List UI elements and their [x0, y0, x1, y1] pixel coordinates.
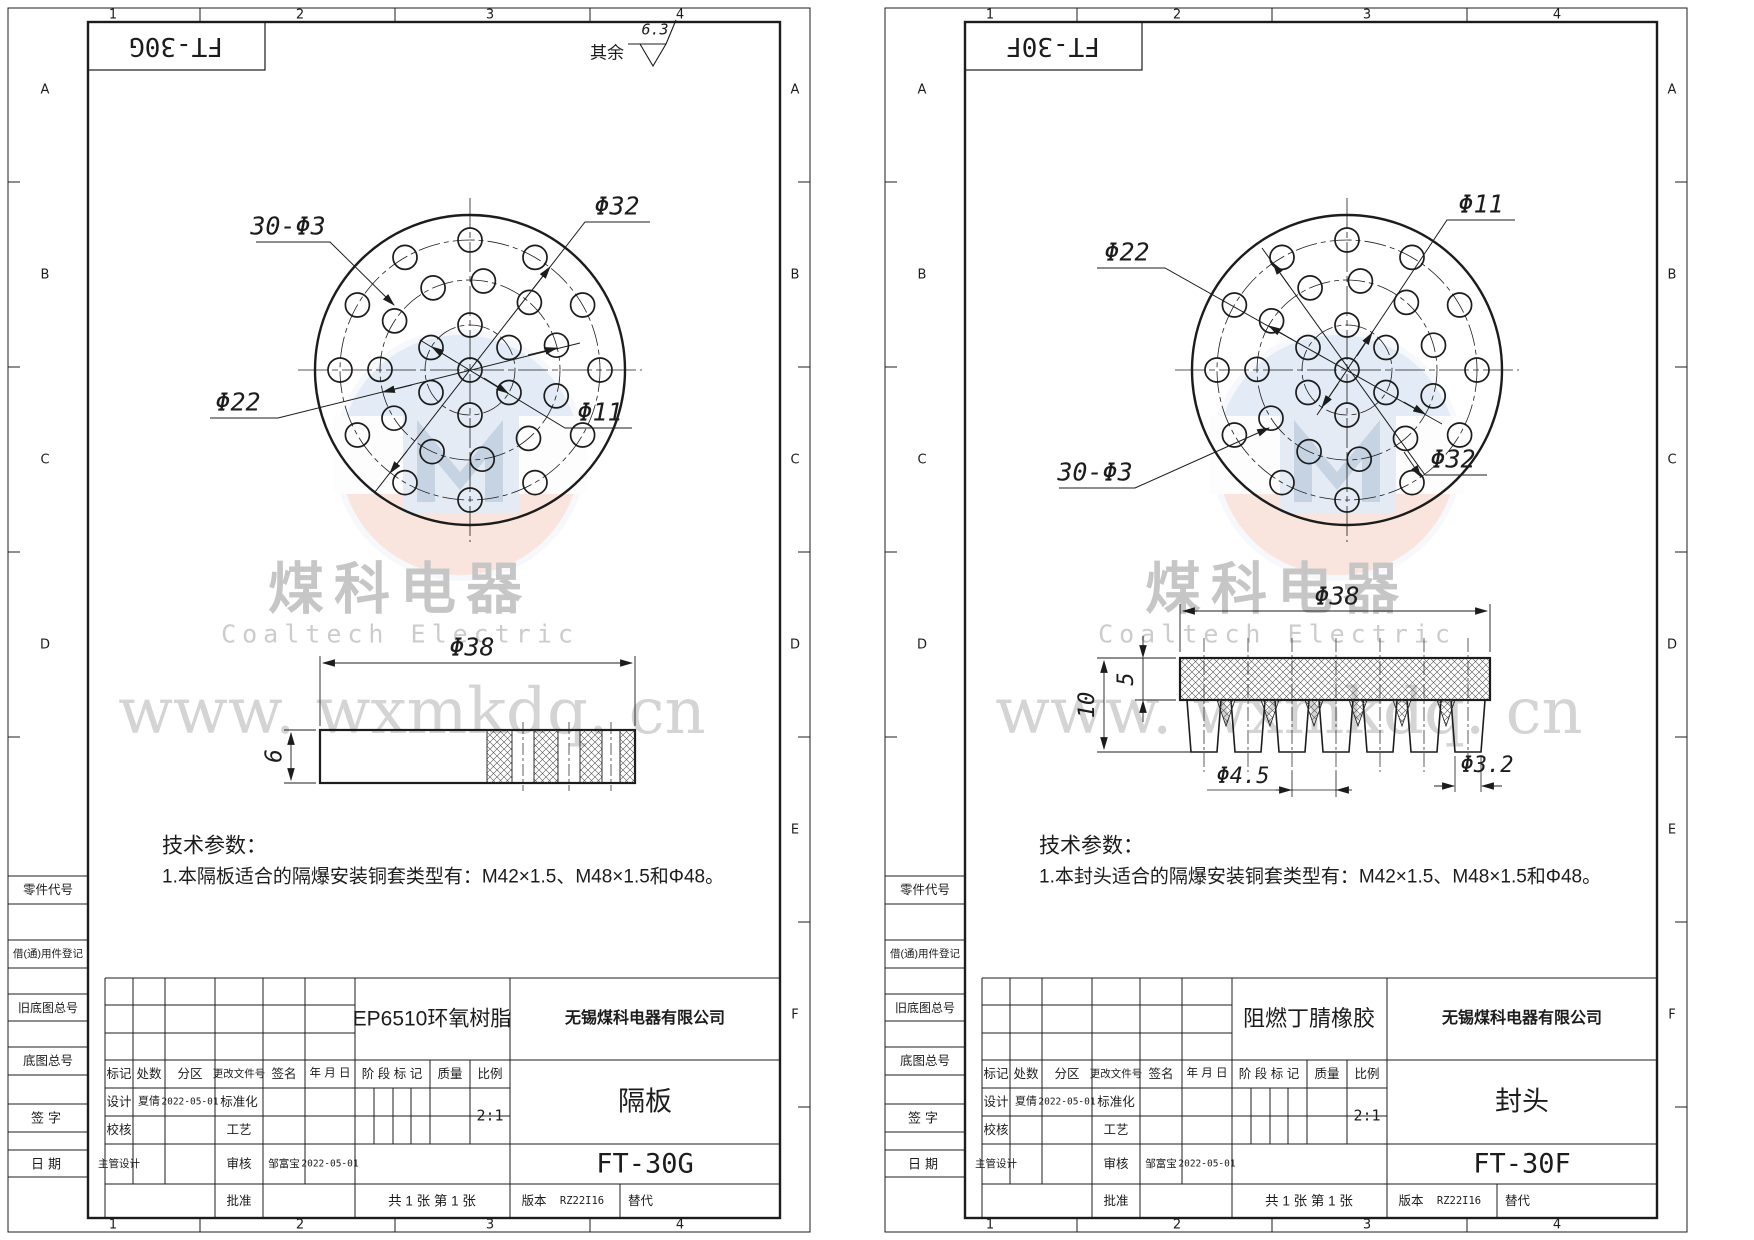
tb-standard-label: 标准化	[1097, 1096, 1135, 1109]
tb-sheets-info: 共 1 张 第 1 张	[388, 1194, 476, 1208]
zone-row-f-r: F	[1668, 1009, 1675, 1022]
circular-view	[210, 198, 650, 542]
tb-design-label: 设计	[983, 1096, 1008, 1109]
zone-col-1b: 1	[109, 1219, 117, 1232]
tb-part-no: FT-30G	[596, 1151, 694, 1178]
tb-alt-label: 替代	[628, 1195, 653, 1208]
zone-col-4: 4	[1553, 9, 1561, 22]
tb-scale-value: 2:1	[1353, 1109, 1380, 1124]
tb-h-docno: 更改文件号	[213, 1069, 266, 1080]
tb-standard-label: 标准化	[220, 1096, 258, 1109]
zone-row-a-l: A	[918, 84, 927, 97]
margin-part-code-label: 零件代号	[23, 884, 73, 897]
zone-row-b-l: B	[918, 269, 927, 282]
section-view	[284, 656, 635, 791]
tb-chief-design-label: 主管设计	[98, 1159, 140, 1170]
margin-sign-label: 签字	[908, 1112, 942, 1125]
zone-row-a-r: A	[1668, 84, 1677, 97]
tb-h-docno: 更改文件号	[1090, 1069, 1143, 1080]
tb-company: 无锡煤科电器有限公司	[1442, 1011, 1602, 1027]
zone-row-c-l: C	[40, 454, 49, 467]
tb-check-label: 校核	[983, 1124, 1008, 1137]
zone-col-3: 3	[1363, 9, 1371, 22]
tb-alt-label: 替代	[1505, 1195, 1530, 1208]
zone-col-1: 1	[986, 9, 994, 22]
surface-note-value: 6.3	[641, 23, 668, 38]
zone-row-e-r: E	[1668, 824, 1676, 837]
dim-phi38: Φ38	[449, 635, 494, 660]
tb-stage-label: 阶 段 标 记	[1239, 1068, 1299, 1081]
tb-part-name: 封头	[1495, 1089, 1549, 1116]
tb-auditor-name: 邹富宝	[268, 1159, 300, 1170]
tb-scale-label: 比例	[477, 1068, 502, 1081]
tb-part-no: FT-30F	[1473, 1151, 1571, 1178]
dim-phi38: Φ38	[1314, 584, 1359, 609]
tb-h-mark: 标记	[106, 1068, 131, 1081]
margin-date-label: 日期	[908, 1158, 942, 1171]
zone-col-4b: 4	[1553, 1219, 1561, 1232]
tb-h-count: 处数	[1013, 1068, 1038, 1081]
tb-design-date: 2022-05-01	[1038, 1097, 1095, 1107]
tb-h-count: 处数	[136, 1068, 161, 1081]
zone-row-c-r: C	[1667, 454, 1676, 467]
zone-col-2b: 2	[1173, 1219, 1181, 1232]
tb-auditor-name: 邹富宝	[1145, 1159, 1177, 1170]
tb-h-sign: 签名	[271, 1068, 296, 1081]
sheet-ft30g: 煤科电器 Coaltech Electric www. wxmkdq. cn	[0, 0, 877, 1240]
zone-col-1b: 1	[986, 1219, 994, 1232]
tb-stage-label: 阶 段 标 记	[362, 1068, 422, 1081]
tb-process-label: 工艺	[1103, 1124, 1128, 1137]
dim-pitch: Φ4.5	[1217, 766, 1270, 788]
zone-col-3b: 3	[486, 1219, 494, 1232]
margin-borrow-label: 借(通)用件登记	[13, 949, 83, 960]
tb-version-value: RZ22I16	[560, 1196, 604, 1207]
tb-version-label: 版本	[1398, 1195, 1423, 1208]
tb-check-label: 校核	[106, 1124, 131, 1137]
zone-col-3: 3	[486, 9, 494, 22]
tb-h-date: 年 月 日	[310, 1068, 351, 1080]
notes-title: 技术参数：	[1039, 836, 1144, 857]
tb-process-label: 工艺	[226, 1124, 251, 1137]
tb-h-zone: 分区	[1054, 1068, 1079, 1081]
tb-h-sign: 签名	[1148, 1068, 1173, 1081]
dim-phi32: Φ32	[1430, 447, 1475, 472]
tb-material: 阻燃丁腈橡胶	[1243, 1008, 1375, 1030]
corner-part-code: FT-30G	[129, 33, 223, 59]
zone-col-3b: 3	[1363, 1219, 1371, 1232]
zone-row-d-r: D	[1667, 639, 1677, 652]
tb-material: EP6510环氧树脂	[353, 1009, 512, 1030]
zone-row-b-r: B	[1668, 269, 1677, 282]
zone-row-a-r: A	[791, 84, 800, 97]
zone-row-f-r: F	[791, 1009, 798, 1022]
tb-company: 无锡煤科电器有限公司	[565, 1011, 725, 1027]
tb-version-value: RZ22I16	[1437, 1196, 1481, 1207]
surface-note-label: 其余	[590, 45, 624, 62]
zone-row-e-r: E	[791, 824, 799, 837]
leader-lines	[210, 222, 650, 492]
tb-part-name: 隔板	[618, 1089, 672, 1116]
dim-band-height: 5	[1116, 672, 1138, 685]
linework-ft30g	[0, 0, 877, 1240]
zone-row-c-r: C	[790, 454, 799, 467]
zone-row-d-l: D	[40, 639, 50, 652]
notes-title: 技术参数：	[162, 836, 267, 857]
dim-phi32: Φ32	[594, 194, 639, 219]
margin-sign-label: 签字	[31, 1112, 65, 1125]
dim-tip: Φ3.2	[1461, 755, 1514, 777]
tb-approve-label: 批准	[1103, 1195, 1128, 1208]
tb-design-label: 设计	[106, 1096, 131, 1109]
dim-thickness: 6	[264, 749, 287, 763]
tb-audit-date: 2022-05-01	[1178, 1159, 1235, 1169]
tb-designer-name: 夏倩	[138, 1097, 160, 1108]
zone-row-a-l: A	[41, 84, 50, 97]
margin-old-base-label: 旧底图总号	[895, 1002, 955, 1014]
drawing-canvas: 煤科电器 Coaltech Electric www. wxmkdq. cn	[0, 0, 1754, 1240]
tb-approve-label: 批准	[226, 1195, 251, 1208]
margin-old-base-label: 旧底图总号	[18, 1002, 78, 1014]
sheet-ft30f: 煤科电器 Coaltech Electric www. wxmkdq. cn	[877, 0, 1754, 1240]
tb-audit-label: 审核	[226, 1158, 251, 1171]
note-item-1: 1.本封头适合的隔爆安装铜套类型有：M42×1.5、M48×1.5和Φ48。	[1039, 868, 1601, 887]
dim-holes-count: 30-Φ3	[250, 214, 325, 239]
zone-row-c-l: C	[917, 454, 926, 467]
dim-phi22: Φ22	[1104, 240, 1149, 265]
tb-mass-label: 质量	[437, 1068, 462, 1081]
tb-version-label: 版本	[521, 1195, 546, 1208]
zone-col-1: 1	[109, 9, 117, 22]
tb-h-mark: 标记	[983, 1068, 1008, 1081]
tb-h-zone: 分区	[177, 1068, 202, 1081]
zone-row-b-l: B	[41, 269, 50, 282]
margin-borrow-label: 借(通)用件登记	[890, 949, 960, 960]
zone-row-b-r: B	[791, 269, 800, 282]
tb-scale-value: 2:1	[476, 1109, 503, 1124]
dim-phi11: Φ11	[577, 400, 622, 425]
tb-h-date: 年 月 日	[1187, 1068, 1228, 1080]
linework-ft30f	[877, 0, 1754, 1240]
dim-holes-count: 30-Φ3	[1057, 460, 1132, 485]
tb-mass-label: 质量	[1314, 1068, 1339, 1081]
tb-audit-date: 2022-05-01	[301, 1159, 358, 1169]
tb-audit-label: 审核	[1103, 1158, 1128, 1171]
margin-base-label: 底图总号	[23, 1055, 73, 1068]
tb-designer-name: 夏倩	[1015, 1097, 1037, 1108]
tb-sheets-info: 共 1 张 第 1 张	[1265, 1194, 1353, 1208]
dim-phi22: Φ22	[215, 390, 260, 415]
dim-total-height: 10	[1077, 692, 1099, 719]
tb-design-date: 2022-05-01	[161, 1097, 218, 1107]
zone-row-d-l: D	[917, 639, 927, 652]
frame	[8, 8, 810, 1232]
zone-col-4b: 4	[676, 1219, 684, 1232]
section-view	[1097, 604, 1502, 797]
corner-part-code: FT-30F	[1006, 33, 1100, 59]
tb-scale-label: 比例	[1354, 1068, 1379, 1081]
margin-date-label: 日期	[31, 1158, 65, 1171]
zone-col-2: 2	[296, 9, 304, 22]
tb-chief-design-label: 主管设计	[975, 1159, 1017, 1170]
zone-row-d-r: D	[790, 639, 800, 652]
dim-phi11: Φ11	[1458, 192, 1503, 217]
zone-col-4: 4	[676, 9, 684, 22]
frame	[885, 8, 1687, 1232]
zone-col-2b: 2	[296, 1219, 304, 1232]
margin-part-code-label: 零件代号	[900, 884, 950, 897]
margin-base-label: 底图总号	[900, 1055, 950, 1068]
note-item-1: 1.本隔板适合的隔爆安装铜套类型有：M42×1.5、M48×1.5和Φ48。	[162, 868, 724, 887]
zone-col-2: 2	[1173, 9, 1181, 22]
